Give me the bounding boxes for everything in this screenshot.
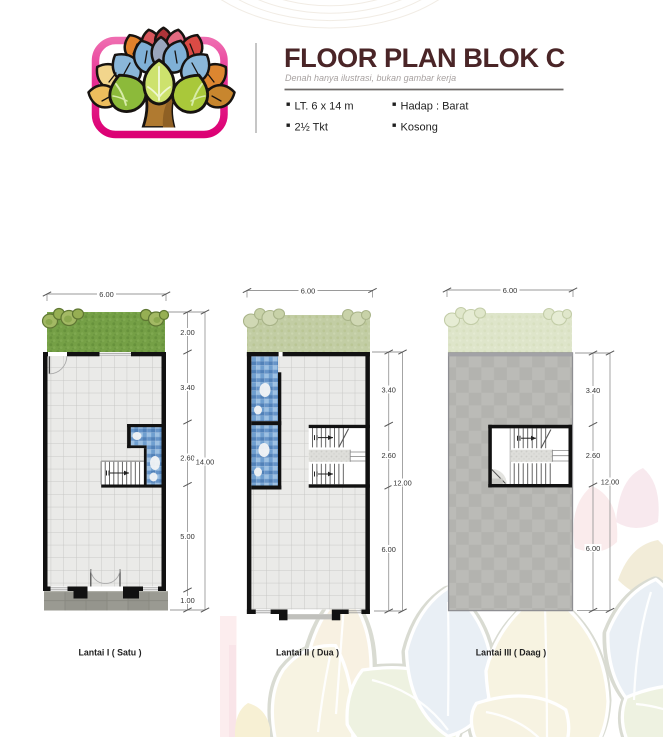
- svg-text:3.40: 3.40: [586, 386, 600, 395]
- svg-text:3.40: 3.40: [180, 383, 194, 392]
- svg-text:2.00: 2.00: [180, 328, 194, 337]
- svg-text:12.00: 12.00: [393, 478, 412, 487]
- svg-text:LT. 6 x 14 m: LT. 6 x 14 m: [295, 101, 354, 113]
- svg-text:2.60: 2.60: [180, 453, 194, 462]
- svg-text:2½ Tkt: 2½ Tkt: [295, 122, 328, 134]
- svg-text:Lantai I ( Satu ): Lantai I ( Satu ): [78, 648, 141, 658]
- svg-text:Lantai II ( Dua ): Lantai II ( Dua ): [276, 648, 339, 658]
- svg-text:FLOOR PLAN BLOK C: FLOOR PLAN BLOK C: [284, 42, 565, 73]
- svg-text:Denah hanya ilustrasi, bukan g: Denah hanya ilustrasi, bukan gambar kerj…: [285, 73, 456, 83]
- svg-text:Kosong: Kosong: [401, 122, 438, 134]
- svg-text:3.40: 3.40: [382, 385, 396, 394]
- svg-text:1.00: 1.00: [180, 596, 194, 605]
- svg-text:2.60: 2.60: [382, 451, 396, 460]
- svg-text:6.00: 6.00: [99, 290, 113, 299]
- svg-text:6.00: 6.00: [301, 286, 315, 295]
- svg-text:12.00: 12.00: [601, 477, 620, 486]
- svg-text:5.00: 5.00: [180, 532, 194, 541]
- svg-text:6.00: 6.00: [382, 545, 396, 554]
- svg-text:14.00: 14.00: [196, 457, 215, 466]
- svg-text:2.60: 2.60: [586, 451, 600, 460]
- svg-text:Hadap : Barat: Hadap : Barat: [401, 101, 469, 113]
- svg-text:6.00: 6.00: [503, 286, 517, 295]
- svg-text:Lantai III ( Daag ): Lantai III ( Daag ): [476, 648, 546, 658]
- svg-text:6.00: 6.00: [586, 544, 600, 553]
